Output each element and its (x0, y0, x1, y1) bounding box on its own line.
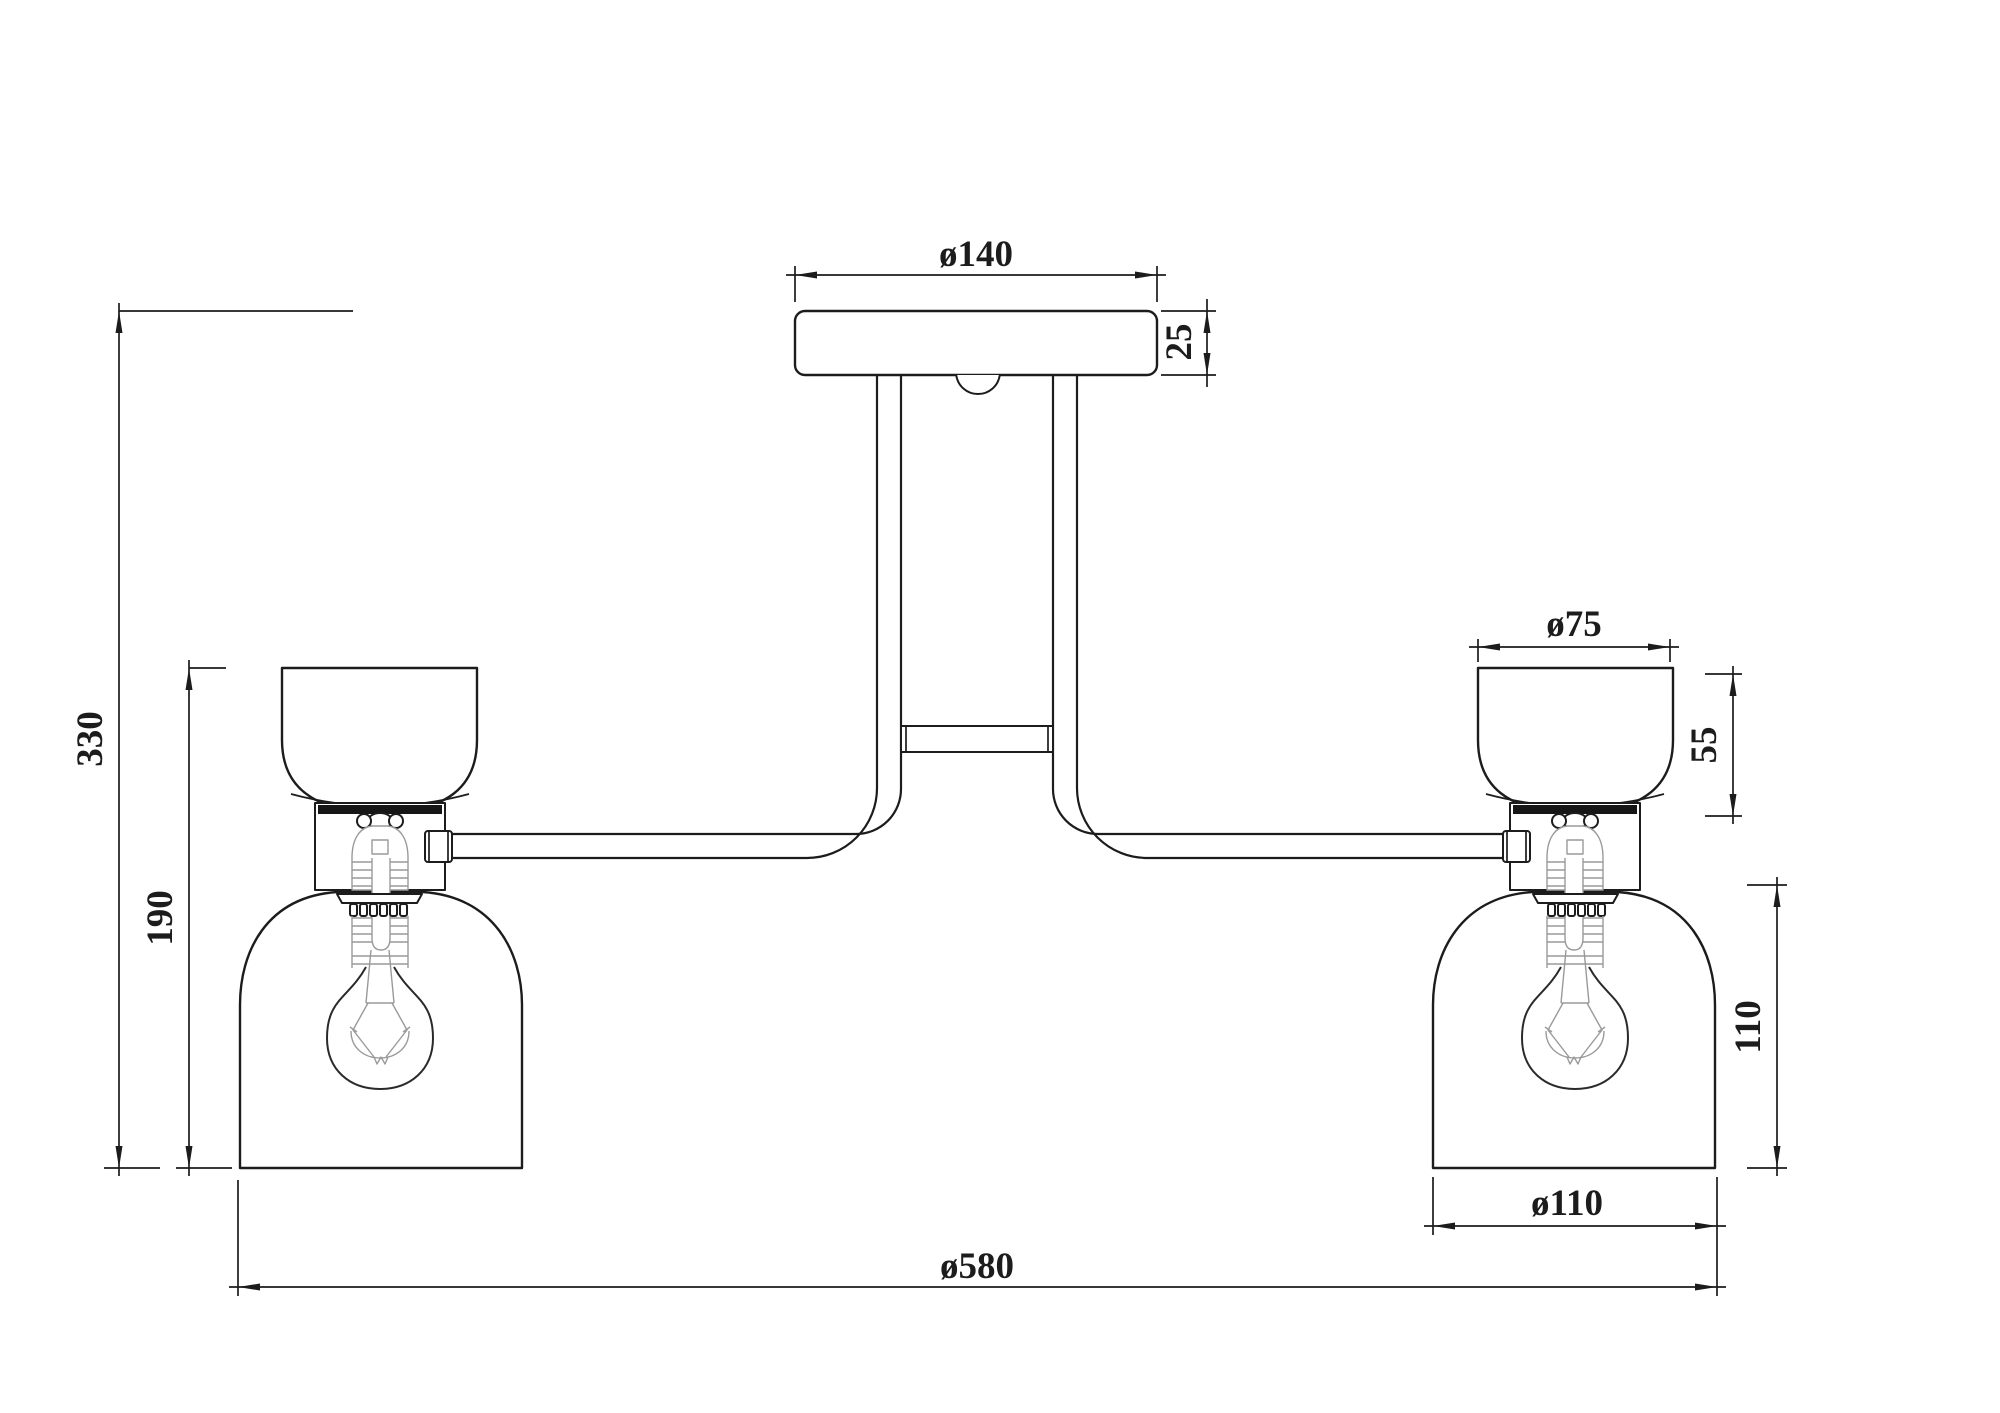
right-arm-top-line (1053, 789, 1503, 834)
dim-label-dome-diameter: ø110 (1531, 1183, 1603, 1224)
right-arm-bottom-line (1077, 788, 1503, 858)
dim-canopy-thickness: 25 (1159, 299, 1216, 387)
left-arm-top-line (452, 789, 901, 834)
dim-label-dome-height: 110 (1728, 1000, 1769, 1053)
dim-dome-height: 110 (1728, 877, 1787, 1176)
stem-crossbar (901, 726, 1053, 752)
dim-label-canopy-diameter: ø140 (939, 234, 1013, 275)
arms (452, 788, 1503, 858)
dim-cup-diameter: ø75 (1469, 604, 1679, 662)
dim-label-overall-width: ø580 (940, 1246, 1014, 1287)
dim-label-lamp-height: 190 (140, 890, 181, 946)
dim-label-cup-height: 55 (1684, 727, 1725, 764)
dim-label-cup-diameter: ø75 (1546, 604, 1602, 645)
dim-label-overall-height: 330 (70, 711, 111, 767)
dim-lamp-height: 190 (140, 660, 232, 1176)
fixture-frame (452, 311, 1503, 858)
canopy-screw-knob (956, 375, 1000, 394)
ceiling-lamp-dimension-drawing: ø140 25 330 190 ø75 (0, 0, 2000, 1413)
ceiling-canopy (795, 311, 1157, 375)
dim-cup-height: 55 (1684, 666, 1742, 824)
technical-drawing-page: ø140 25 330 190 ø75 (0, 0, 2000, 1413)
lamp-left (240, 668, 522, 1168)
dim-dome-diameter: ø110 (1424, 1177, 1726, 1296)
dim-overall-width: ø580 (229, 1180, 1726, 1296)
dim-label-canopy-thickness: 25 (1159, 324, 1200, 361)
lamp-right (1433, 668, 1715, 1168)
left-arm-bottom-line (452, 788, 877, 858)
dim-canopy-diameter: ø140 (786, 234, 1166, 302)
